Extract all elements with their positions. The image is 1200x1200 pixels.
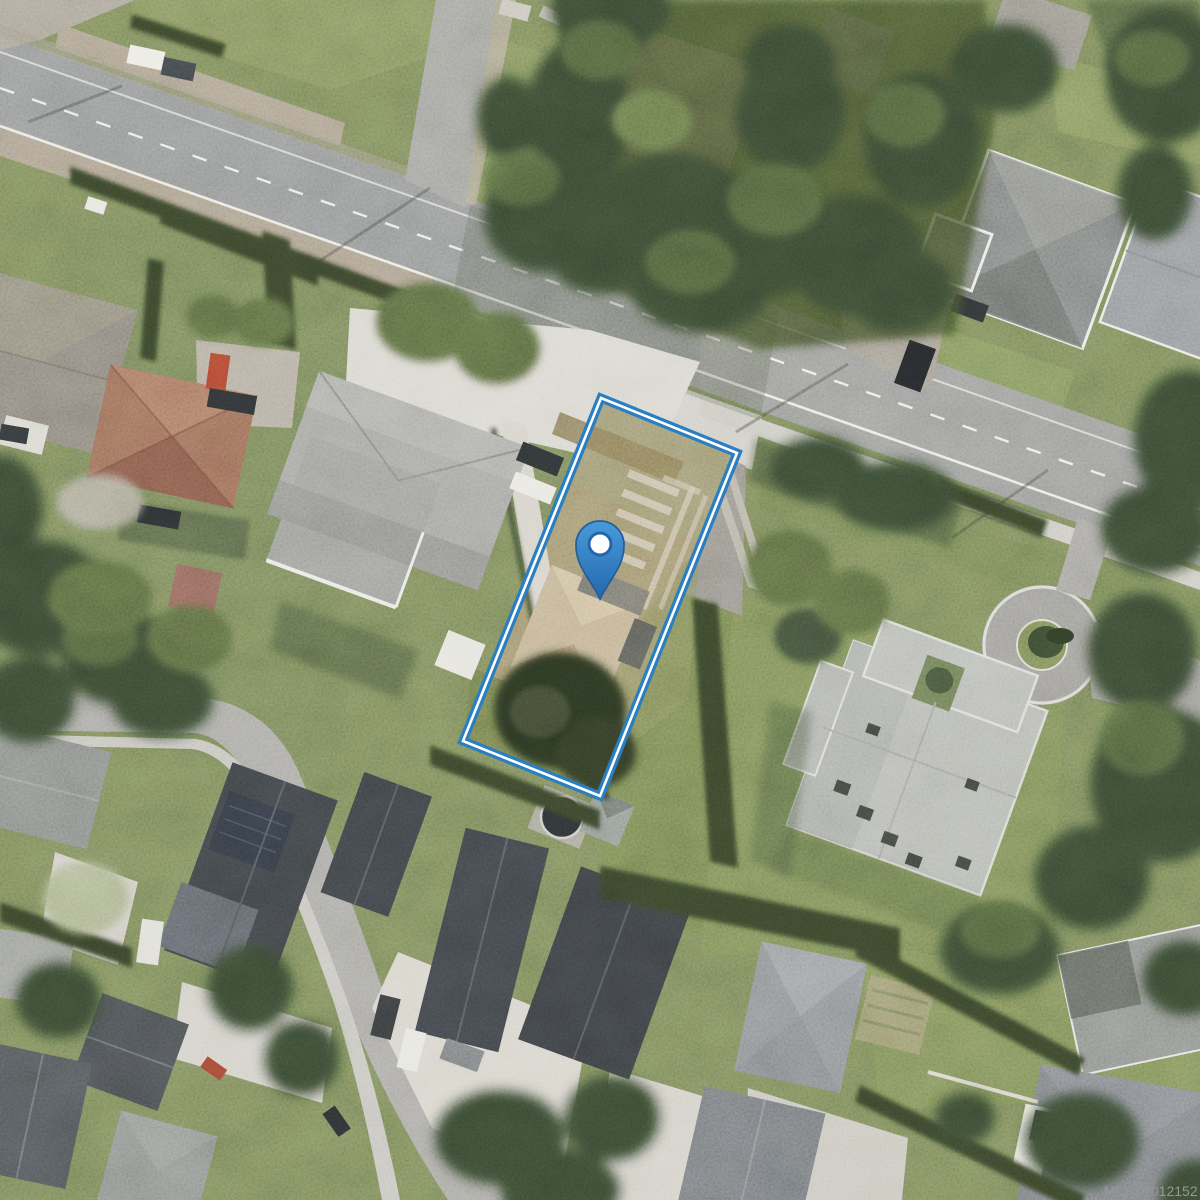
svg-text:MLS®1012152: MLS®1012152 (1104, 1183, 1198, 1199)
